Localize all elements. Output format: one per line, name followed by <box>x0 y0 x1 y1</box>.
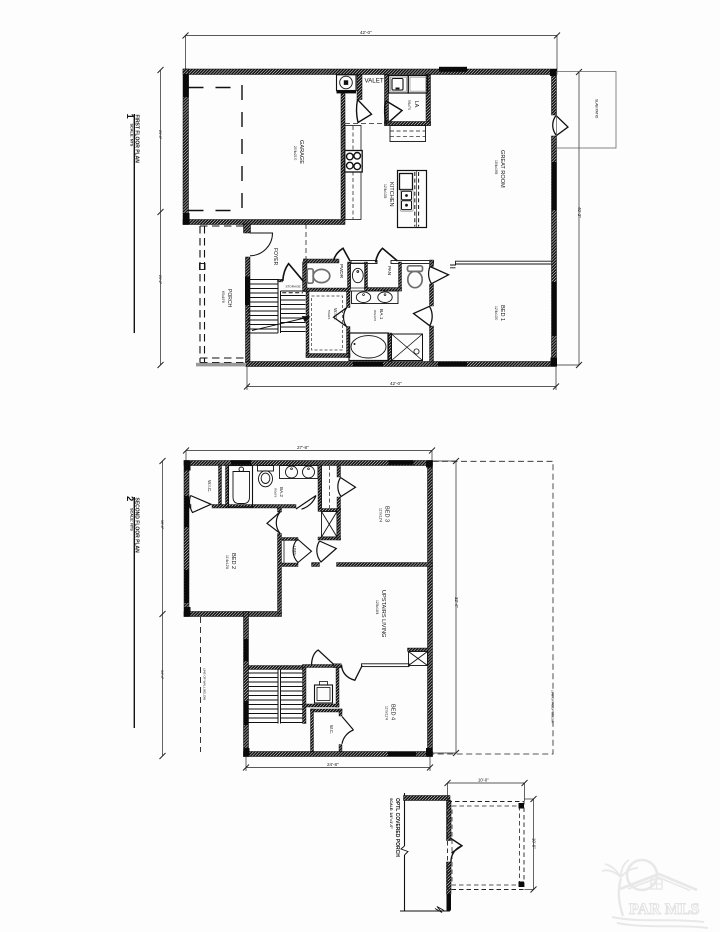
svg-text:24'-8": 24'-8" <box>327 762 339 767</box>
svg-text:SLAB PATIO: SLAB PATIO <box>595 99 599 119</box>
svg-text:BA.1: BA.1 <box>378 309 384 320</box>
svg-text:40'-2": 40'-2" <box>577 207 582 218</box>
svg-text:PAR MLS: PAR MLS <box>629 901 699 918</box>
svg-text:VALET: VALET <box>365 78 384 85</box>
svg-text:GREAT ROOM: GREAT ROOM <box>499 150 505 188</box>
svg-text:SCALE: NTS: SCALE: NTS <box>130 124 134 147</box>
svg-text:SCALE: NTS: SCALE: NTS <box>130 508 134 531</box>
svg-text:BED 2: BED 2 <box>230 553 236 569</box>
svg-text:12'8x18'4: 12'8x18'4 <box>375 600 379 614</box>
svg-text:LINEN: LINEN <box>293 546 297 556</box>
svg-text:1: 1 <box>124 114 135 120</box>
svg-text:SCALE: 1/4"=1'-0": SCALE: 1/4"=1'-0" <box>389 798 393 829</box>
svg-text:27'-8": 27'-8" <box>297 445 309 450</box>
svg-text:5'0x9'6: 5'0x9'6 <box>327 310 331 320</box>
svg-text:12'4x13'8: 12'4x13'8 <box>383 184 387 198</box>
svg-text:11'0x12'4: 11'0x12'4 <box>379 508 383 522</box>
svg-text:16'-0": 16'-0" <box>160 520 164 530</box>
svg-text:PWDR: PWDR <box>339 264 344 279</box>
svg-text:BED 1: BED 1 <box>499 305 505 321</box>
svg-text:6'0x19'8: 6'0x19'8 <box>221 291 225 303</box>
svg-text:10'-0": 10'-0" <box>478 778 489 783</box>
svg-text:10'-0": 10'-0" <box>532 838 537 849</box>
svg-text:21'-2": 21'-2" <box>158 275 162 285</box>
svg-text:15'4x19'8: 15'4x19'8 <box>494 160 498 174</box>
svg-text:W.I.C.: W.I.C. <box>333 308 338 321</box>
svg-text:UPSTAIRS LIVING: UPSTAIRS LIVING <box>380 590 386 637</box>
svg-text:11'4x12'8: 11'4x12'8 <box>225 555 229 569</box>
svg-text:KITCHEN: KITCHEN <box>388 182 394 207</box>
svg-text:BED 3: BED 3 <box>384 506 390 522</box>
svg-text:STORAGE: STORAGE <box>286 284 301 288</box>
svg-text:PAN: PAN <box>387 266 392 275</box>
svg-text:LINE OF ROOF BELOW: LINE OF ROOF BELOW <box>551 690 555 723</box>
svg-text:W.I.C.: W.I.C. <box>207 480 212 493</box>
svg-text:42'-0": 42'-0" <box>390 381 402 386</box>
svg-text:9'0x5'6: 9'0x5'6 <box>274 488 278 498</box>
svg-text:9'0x12'6: 9'0x12'6 <box>373 310 377 321</box>
svg-text:21'-0": 21'-0" <box>158 130 162 140</box>
svg-text:BA.2: BA.2 <box>279 487 284 497</box>
svg-text:20'4x21'0: 20'4x21'0 <box>293 146 297 160</box>
svg-text:BED 4: BED 4 <box>390 704 396 720</box>
svg-text:32'-4": 32'-4" <box>454 597 459 608</box>
svg-text:11'0x11'4: 11'0x11'4 <box>385 706 389 720</box>
svg-text:PORCH: PORCH <box>226 289 232 307</box>
svg-text:14'-4": 14'-4" <box>160 670 164 680</box>
svg-text:42'-0": 42'-0" <box>360 30 372 35</box>
svg-text:FOYER: FOYER <box>272 248 278 266</box>
svg-text:OPTL COVERED PORCH: OPTL COVERED PORCH <box>394 798 400 857</box>
svg-text:LINE OF WALL BELOW: LINE OF WALL BELOW <box>203 668 207 700</box>
svg-text:LA.: LA. <box>413 101 419 109</box>
svg-text:5'6x7'0: 5'6x7'0 <box>407 100 411 110</box>
svg-text:W.C.: W.C. <box>329 725 334 734</box>
svg-text:GARAGE: GARAGE <box>298 140 304 164</box>
svg-text:2: 2 <box>124 496 135 501</box>
svg-text:12'4x13'0: 12'4x13'0 <box>494 306 498 320</box>
